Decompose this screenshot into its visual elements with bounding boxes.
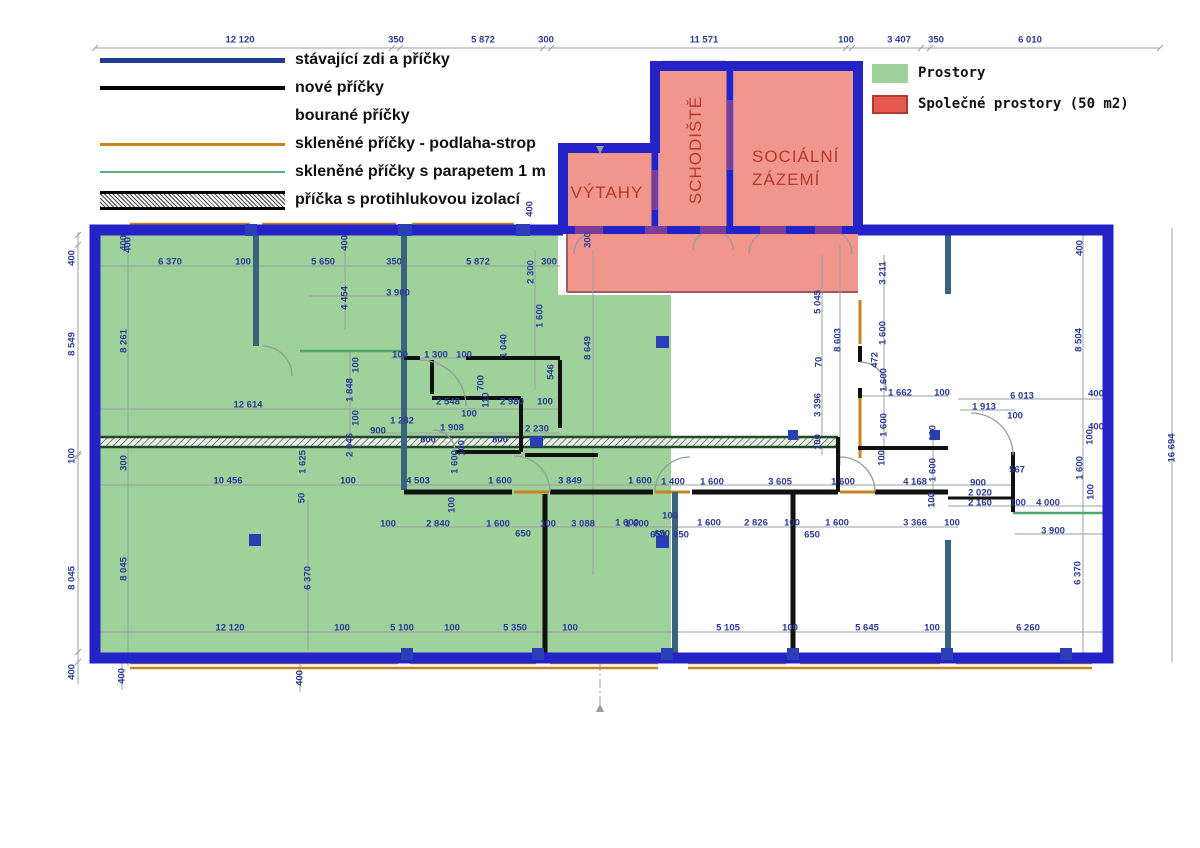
dim-label: 11 571 [690, 35, 719, 45]
legend-wall-label: příčka s protihlukovou izolací [295, 191, 520, 209]
dim-label: 3 211 [878, 261, 888, 284]
dim-label: 8 045 [119, 557, 129, 581]
dim-label: 100 [351, 410, 361, 426]
dim-label: 8 603 [833, 328, 843, 352]
dim-label: 5 650 [311, 257, 335, 267]
dim-label: 1 282 [390, 416, 414, 426]
dim-label: 5 872 [471, 35, 495, 45]
dim-label: 1 400 [661, 477, 685, 487]
legend-wall-item: nové příčky [100, 76, 546, 100]
legend-wall-item: stávající zdi a příčky [100, 48, 546, 72]
legend-wall-label: nové příčky [295, 79, 384, 97]
dim-label: 100 [813, 434, 823, 450]
dim-label: 567 [1009, 465, 1025, 475]
legend-wall-types: stávající zdi a příčkynové příčkybourané… [100, 48, 546, 216]
dim-label: 1 600 [697, 518, 721, 528]
dim-label: 100 [784, 518, 800, 528]
dim-label: 100 [380, 519, 396, 529]
legend-areas: ProstorySpolečné prostory (50 m2) [872, 64, 1129, 126]
dim-label: 3 366 [903, 518, 927, 528]
dim-label: 2 230 [525, 424, 549, 434]
dim-label: 100 [392, 350, 408, 360]
dim-label: 6 013 [1010, 391, 1034, 401]
dim-label: 100 [235, 257, 251, 267]
dim-label: 400 [1088, 389, 1104, 399]
none-line-swatch [100, 114, 285, 118]
dim-label: 650 [804, 530, 820, 540]
dim-label: 10 456 [213, 476, 242, 486]
dim-label: 2 160 [968, 498, 992, 508]
dim-label: 1 913 [972, 402, 996, 412]
dim-label: 100 [838, 35, 854, 45]
dim-label: 3 407 [887, 35, 911, 45]
dim-label: 1 600 [628, 476, 652, 486]
legend-wall-label: skleněné příčky s parapetem 1 m [295, 163, 546, 181]
dim-label: 100 [782, 623, 798, 633]
dim-label: 650 [515, 529, 531, 539]
dim-label: 5 645 [855, 623, 879, 633]
dim-label: 1 600 [825, 518, 849, 528]
dim-label: 100 [461, 409, 477, 419]
dim-label: 100 [928, 425, 938, 441]
existing-line-swatch [100, 58, 285, 63]
dim-label: 300 [119, 455, 129, 471]
dim-label: 350 [386, 257, 402, 267]
dim-label: 400 [67, 664, 77, 680]
dim-label: 400 [123, 237, 133, 253]
acoustic-line-swatch [100, 191, 285, 210]
dim-label: 100 [444, 623, 460, 633]
dim-label: 12 120 [225, 35, 254, 45]
dim-label: 100 [334, 623, 350, 633]
dim-label: 2 840 [426, 519, 450, 529]
dim-label: 1 662 [888, 388, 912, 398]
dim-label: 100 [447, 497, 457, 513]
dim-label: 8 549 [67, 332, 77, 356]
dim-label: 100 [1086, 484, 1096, 500]
dim-label: 6 370 [158, 257, 182, 267]
dim-label: 400 [117, 668, 127, 684]
room-label-social-facilities: SOCIÁLNÍ ZÁZEMÍ [752, 146, 839, 192]
dim-label: 1 600 [535, 304, 545, 328]
dim-label: 110 [481, 392, 491, 407]
dim-label: 3 900 [1041, 526, 1065, 536]
legend-wall-label: bourané příčky [295, 107, 410, 125]
dim-label: 100 [924, 623, 940, 633]
dim-label: 1 600 [879, 413, 889, 437]
dim-label: 350 [388, 35, 404, 45]
dim-label: 5 350 [503, 623, 527, 633]
dim-label: 5 100 [390, 623, 414, 633]
dim-label: 300 [538, 35, 554, 45]
dim-label: 5 872 [466, 257, 490, 267]
legend-wall-item: skleněné příčky - podlaha-strop [100, 132, 546, 156]
dim-label: 100 [877, 450, 887, 466]
dim-label: 546 [546, 364, 556, 380]
room-label-social-line1: SOCIÁLNÍ [752, 147, 839, 166]
legend-wall-label: stávající zdi a příčky [295, 51, 450, 69]
dim-label: 3 605 [768, 477, 792, 487]
dim-label: 1 908 [440, 423, 464, 433]
dim-label: 650 [654, 529, 670, 539]
dim-label: 3 088 [571, 519, 595, 529]
legend-wall-item: skleněné příčky s parapetem 1 m [100, 160, 546, 184]
dim-label: 1 600 [928, 458, 938, 482]
dim-label: 4 168 [903, 477, 927, 487]
dim-label: 3 396 [813, 393, 823, 417]
dim-label: 3 900 [386, 288, 410, 298]
dim-label: 900 [370, 426, 386, 436]
legend-area-item: Prostory [872, 64, 1129, 82]
dim-label: 100 [562, 623, 578, 633]
dim-label: 2 980 [500, 397, 524, 407]
dim-label: 100 [540, 519, 556, 529]
dim-label: 16 694 [1167, 433, 1177, 462]
dim-label: 2 300 [526, 260, 536, 284]
dim-label: 2 046 [345, 433, 355, 457]
dim-label: 6 010 [1018, 35, 1042, 45]
dim-label: 50 [297, 493, 307, 504]
dim-label: 400 [1075, 240, 1085, 256]
new-line-swatch [100, 86, 285, 90]
dim-label: 1 848 [345, 378, 355, 402]
legend-area-label: Společné prostory (50 m2) [918, 96, 1129, 112]
dim-label: 100 [456, 350, 472, 360]
dim-label: 8 504 [1074, 328, 1084, 352]
dim-label: 2 826 [744, 518, 768, 528]
dim-label: 350 [928, 35, 944, 45]
legend-area-item: Společné prostory (50 m2) [872, 95, 1129, 113]
dim-label: 4 503 [406, 476, 430, 486]
legend-wall-item: příčka s protihlukovou izolací [100, 188, 546, 212]
dim-label: 100 [537, 397, 553, 407]
glass-parapet-line-swatch [100, 171, 285, 173]
dim-label: 8 649 [583, 336, 593, 360]
dim-label: 5 045 [813, 290, 823, 314]
dim-label: 100 [1010, 498, 1026, 508]
dim-label: 70 [814, 357, 824, 368]
dim-label: 100 [1085, 429, 1095, 445]
dim-label: 1 600 [831, 477, 855, 487]
dim-label: 6 260 [1016, 623, 1040, 633]
dim-label: 8 261 [119, 329, 129, 353]
room-label-social-line2: ZÁZEMÍ [752, 170, 820, 189]
dim-label: 100 [1007, 411, 1023, 421]
dim-label: 1 040 [499, 334, 509, 358]
dim-label: 800 [420, 435, 436, 445]
dim-label: 100 [927, 492, 937, 508]
dim-label: 700 [476, 375, 486, 391]
dim-label: 1 600 [625, 519, 649, 529]
dim-label: 300 [583, 232, 593, 248]
dim-label: 1 300 [424, 350, 448, 360]
dim-label: 100 [340, 476, 356, 486]
dim-label: 4 454 [340, 286, 350, 310]
floor-plan-canvas: stávající zdi a příčkynové příčkybourané… [0, 0, 1200, 848]
area-color-swatch [872, 95, 908, 114]
dim-label: 12 614 [233, 400, 262, 410]
dim-label: 4 000 [1036, 498, 1060, 508]
dim-label: 3 849 [558, 476, 582, 486]
dim-label: 1 625 [298, 450, 308, 474]
dim-label: 100 [351, 357, 361, 373]
dim-label: 100 [944, 518, 960, 528]
legend-wall-item: bourané příčky [100, 104, 546, 128]
dim-label: 400 [295, 670, 305, 686]
area-color-swatch [872, 64, 908, 83]
glass-full-line-swatch [100, 143, 285, 146]
dim-label: 8 045 [67, 566, 77, 590]
dim-label: 5 105 [716, 623, 740, 633]
dim-label: 1 600 [700, 477, 724, 487]
dim-label: 2 548 [436, 397, 460, 407]
dim-label: 6 370 [1073, 561, 1083, 585]
dim-label: 1 600 [486, 519, 510, 529]
dim-label: 1 600 [1075, 456, 1085, 480]
room-label-staircase: SCHODIŠTĚ [686, 96, 706, 204]
dim-label: 100 [662, 511, 678, 521]
dim-label: 472 [870, 352, 880, 368]
dim-label: 1 600 [878, 321, 888, 345]
dim-label: 300 [541, 257, 557, 267]
dim-label: 650 [673, 530, 689, 540]
legend-wall-label: skleněné příčky - podlaha-strop [295, 135, 536, 153]
dim-label: 6 370 [303, 566, 313, 590]
dim-label: 12 120 [215, 623, 244, 633]
dim-label: 100 [934, 388, 950, 398]
dim-label: 400 [67, 250, 77, 266]
dim-label: 1 600 [450, 450, 460, 474]
room-label-elevators: VÝTAHY [571, 183, 644, 203]
dim-label: 400 [340, 235, 350, 251]
dim-label: 1 600 [488, 476, 512, 486]
legend-area-label: Prostory [918, 65, 985, 81]
dim-label: 800 [492, 435, 508, 445]
dim-label: 100 [67, 448, 77, 464]
